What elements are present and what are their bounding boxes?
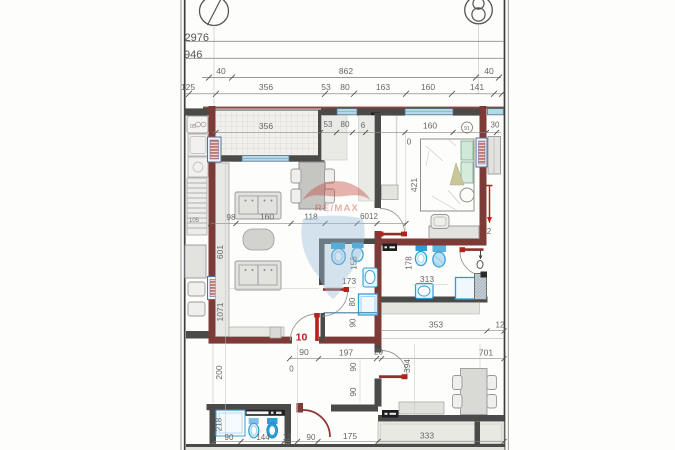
svg-text:90: 90 [299,347,309,357]
svg-text:05: 05 [190,124,196,130]
svg-text:90: 90 [349,318,358,327]
svg-text:2: 2 [487,227,492,236]
svg-text:701: 701 [479,348,493,358]
svg-text:862: 862 [339,66,353,76]
svg-text:125: 125 [181,82,195,92]
svg-text:40: 40 [484,66,494,76]
svg-text:163: 163 [376,82,390,92]
svg-text:12: 12 [283,433,292,442]
svg-text:313: 313 [420,274,434,284]
svg-text:80: 80 [340,82,350,92]
svg-text:20: 20 [374,348,383,357]
svg-text:40: 40 [216,66,226,76]
svg-text:601: 601 [215,245,225,259]
svg-text:98: 98 [227,213,236,222]
svg-text:353: 353 [429,320,443,330]
svg-text:105: 105 [189,218,200,224]
svg-text:90: 90 [349,362,358,371]
svg-text:30: 30 [491,121,500,130]
svg-text:91: 91 [464,126,470,132]
svg-text:53: 53 [324,120,333,129]
svg-text:218: 218 [215,417,224,431]
svg-text:160: 160 [260,212,274,222]
svg-text:160: 160 [421,82,435,92]
svg-text:946: 946 [184,49,202,61]
svg-text:0: 0 [289,365,294,374]
svg-text:90: 90 [349,387,358,396]
svg-text:10: 10 [296,332,308,344]
svg-text:333: 333 [420,431,434,441]
svg-text:144: 144 [256,433,270,442]
svg-text:421: 421 [409,178,419,192]
svg-text:197: 197 [339,348,353,358]
svg-text:356: 356 [259,121,273,131]
svg-text:2976: 2976 [185,32,209,44]
svg-text:141: 141 [470,82,484,92]
svg-text:160: 160 [423,121,437,131]
svg-text:6: 6 [361,121,366,130]
svg-text:200: 200 [214,365,224,379]
svg-text:1071: 1071 [215,302,225,321]
svg-text:175: 175 [343,431,357,441]
svg-text:0: 0 [407,138,412,147]
svg-text:394: 394 [403,359,412,373]
svg-text:90: 90 [307,433,316,442]
svg-text:80: 80 [348,297,357,306]
svg-text:178: 178 [405,256,414,270]
svg-text:356: 356 [259,82,273,92]
svg-text:12: 12 [496,321,505,330]
svg-text:90: 90 [225,433,234,442]
svg-text:80: 80 [341,120,350,129]
svg-text:RE/MAX: RE/MAX [315,203,359,214]
svg-text:53: 53 [321,82,331,92]
